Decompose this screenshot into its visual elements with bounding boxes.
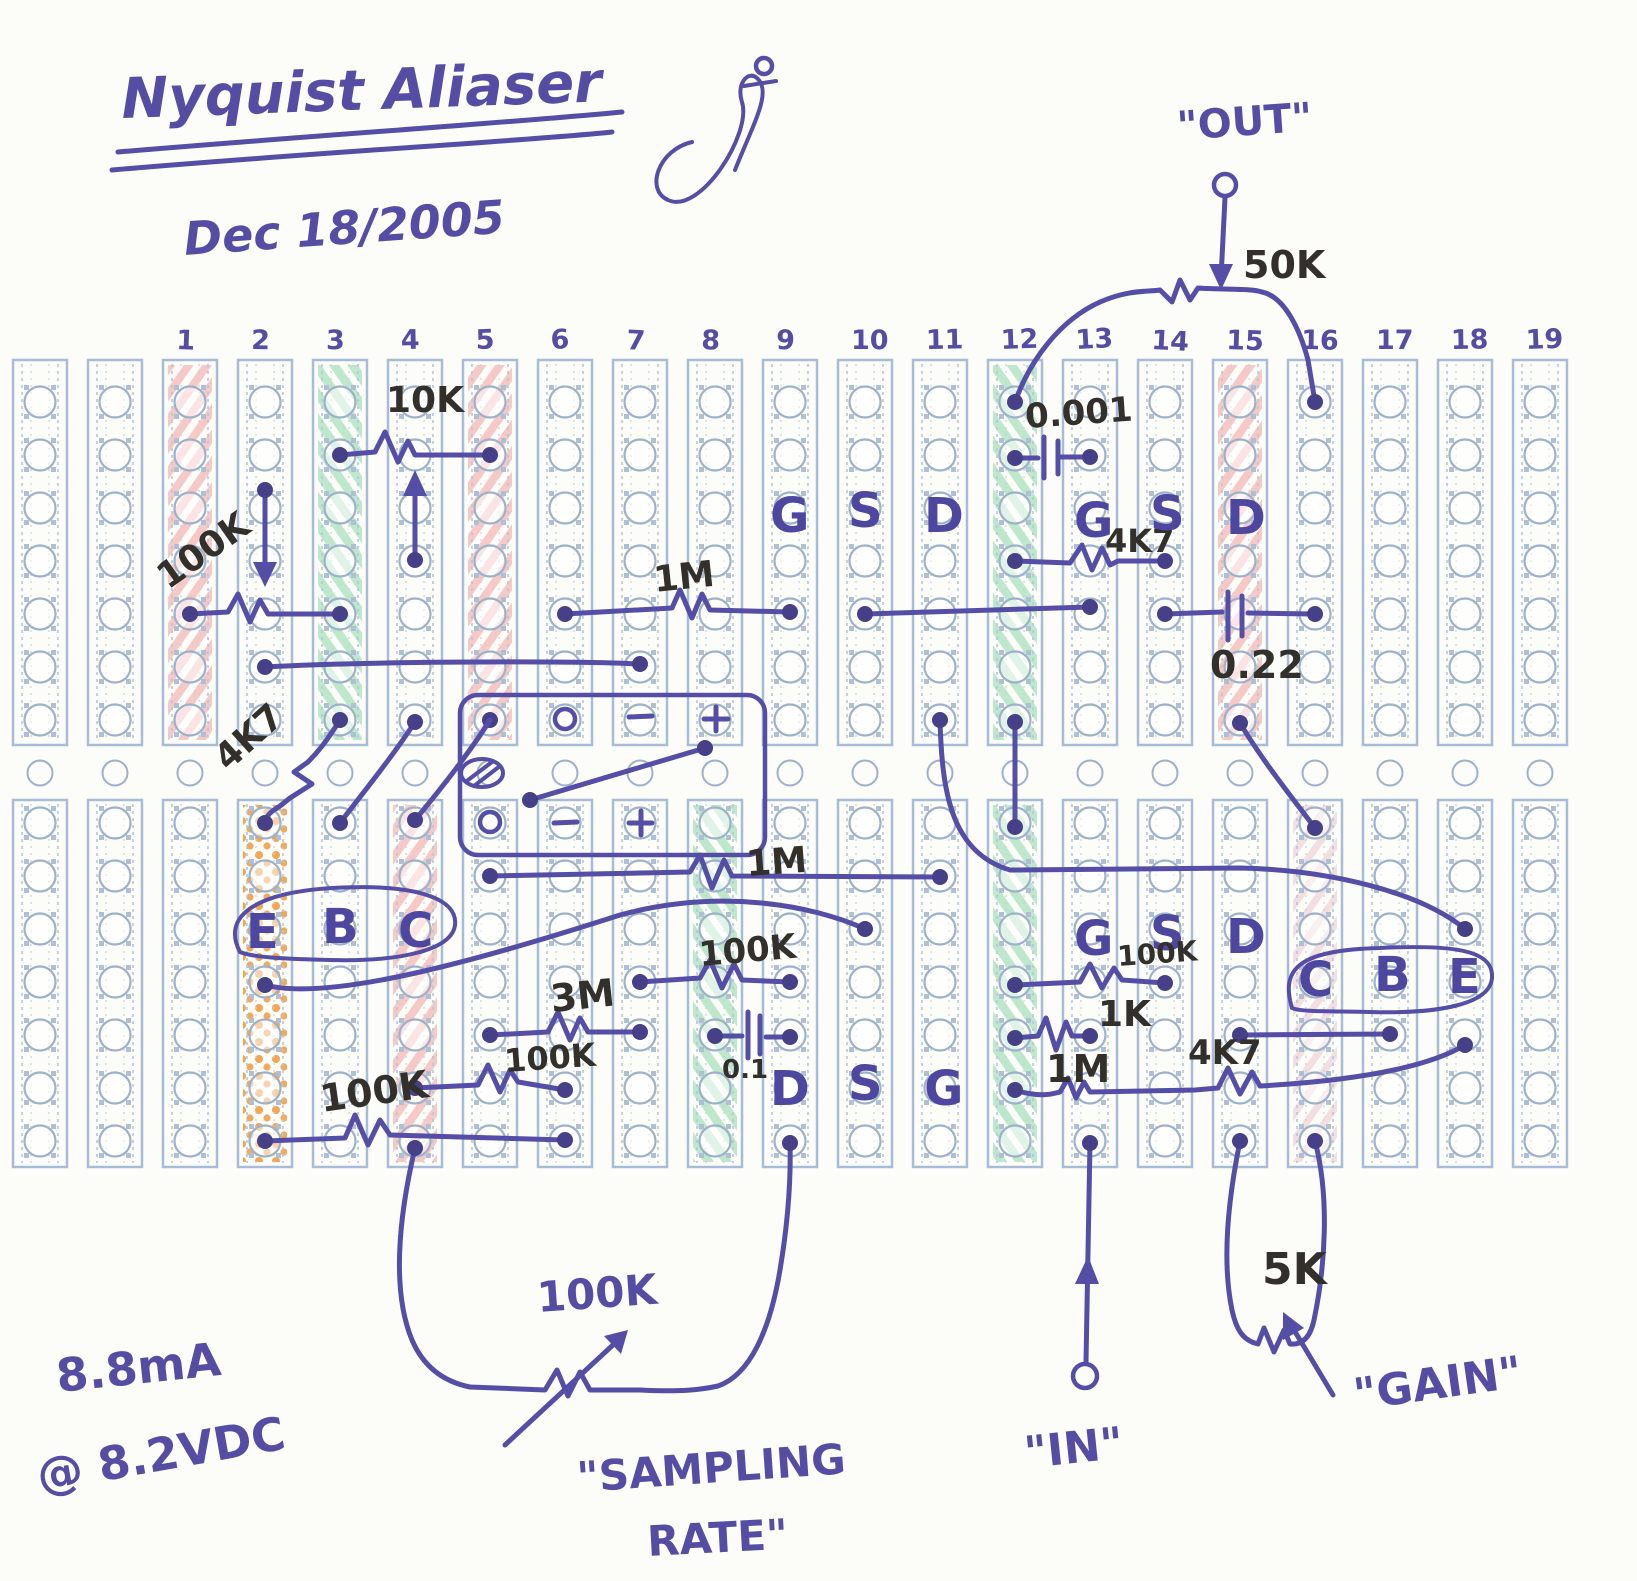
label-r50k: 50K: [1243, 243, 1327, 287]
column-number: 1: [176, 325, 196, 357]
pot-50k-out: [1007, 174, 1323, 410]
label-r1m-right: 1M: [1046, 1047, 1110, 1091]
board-column-14: 14: [1138, 325, 1192, 1167]
label-sampling-1: "SAMPLING: [575, 1434, 847, 1502]
label-gain: "GAIN": [1350, 1347, 1525, 1421]
label-r4k7-mid: 4K7: [207, 696, 292, 779]
board-column-7: 7: [613, 325, 667, 1167]
pin-bjt2-e: E: [1448, 949, 1481, 1005]
pin-bjt1-e: E: [246, 904, 279, 960]
column-number: 2: [251, 325, 270, 356]
label-c01: 0.1: [722, 1055, 768, 1085]
pin-fet2-g: G: [1074, 493, 1113, 549]
board-column: [13, 360, 67, 1167]
opamp-pin-minus-bot: [554, 822, 577, 823]
column-number: 11: [926, 324, 964, 356]
label-r10k: 10K: [386, 380, 465, 421]
board-column: [88, 360, 142, 1167]
label-voltage: @ 8.2VDC: [33, 1406, 290, 1503]
in-terminal: [1073, 1364, 1097, 1388]
label-r3m: 3M: [548, 970, 617, 1020]
column-number: 5: [475, 324, 495, 356]
label-sampling-2: RATE": [646, 1510, 789, 1566]
column-number: 13: [1075, 323, 1114, 356]
board-column-10: 10: [838, 325, 892, 1167]
pin-fet1-d: D: [924, 488, 964, 544]
label-in: "IN": [1022, 1418, 1126, 1479]
column-number: 6: [550, 324, 570, 356]
column-number: 19: [1525, 324, 1564, 356]
signature-squiggle: [656, 58, 776, 202]
label-r100k-sampling: 100K: [535, 1265, 660, 1322]
in-terminal-wire: [1073, 1135, 1099, 1388]
column-number: 15: [1226, 325, 1265, 357]
scanned-breadboard-schematic: 12345678910111213141516171819: [0, 0, 1637, 1581]
label-r1k: 1K: [1098, 994, 1152, 1035]
pin-fet4-d: D: [1226, 909, 1266, 965]
column-number: 9: [776, 325, 795, 356]
label-r1m-top: 1M: [652, 554, 717, 601]
pin-fet3-s: S: [848, 1056, 883, 1112]
pin-fet2-s: S: [1150, 486, 1185, 542]
pin-fet3-g: G: [924, 1061, 963, 1117]
board-column-16: 16: [1288, 325, 1342, 1167]
schematic-canvas: 12345678910111213141516171819: [0, 0, 1637, 1581]
label-r4k7-right: 4K7: [1188, 1033, 1262, 1073]
column-number: 8: [701, 325, 721, 357]
pin-bjt2-b: B: [1374, 947, 1411, 1003]
cap-022: [1157, 592, 1323, 640]
label-r100k-a: 100K: [503, 1036, 598, 1080]
label-current: 8.8mA: [54, 1332, 224, 1403]
column-number: 3: [326, 325, 345, 356]
column-number: 12: [1000, 324, 1039, 356]
pin-fet4-g: G: [1074, 911, 1113, 967]
column-number: 4: [401, 325, 420, 356]
opamp-pin-minus-top: [629, 716, 652, 717]
wire-col2-col7: [257, 656, 648, 675]
pin-bjt2-c: C: [1298, 952, 1333, 1008]
pin-fet3-d: D: [770, 1061, 810, 1117]
board-column-19: 19: [1513, 324, 1567, 1167]
column-number: 7: [626, 325, 646, 357]
pin-fet2-d: D: [1226, 490, 1266, 546]
pin-fet1-s: S: [848, 483, 883, 539]
pin-fet1-g: G: [770, 488, 809, 544]
label-out: "OUT": [1175, 95, 1313, 150]
out-terminal: [1214, 174, 1236, 196]
label-r100k-right: 100K: [1116, 934, 1200, 973]
pin-bjt1-c: C: [398, 903, 433, 959]
pin-bjt1-b: B: [322, 899, 359, 955]
column-number: 14: [1151, 325, 1190, 358]
page-date: Dec 18/2005: [182, 190, 506, 266]
label-r1m-bot: 1M: [745, 840, 809, 885]
label-r5k: 5K: [1262, 1244, 1329, 1295]
column-number: 17: [1376, 325, 1414, 356]
label-c0001: 0.001: [1024, 390, 1134, 437]
column-number: 10: [851, 325, 889, 356]
label-c022: 0.22: [1210, 643, 1304, 687]
column-number: 18: [1451, 324, 1489, 356]
